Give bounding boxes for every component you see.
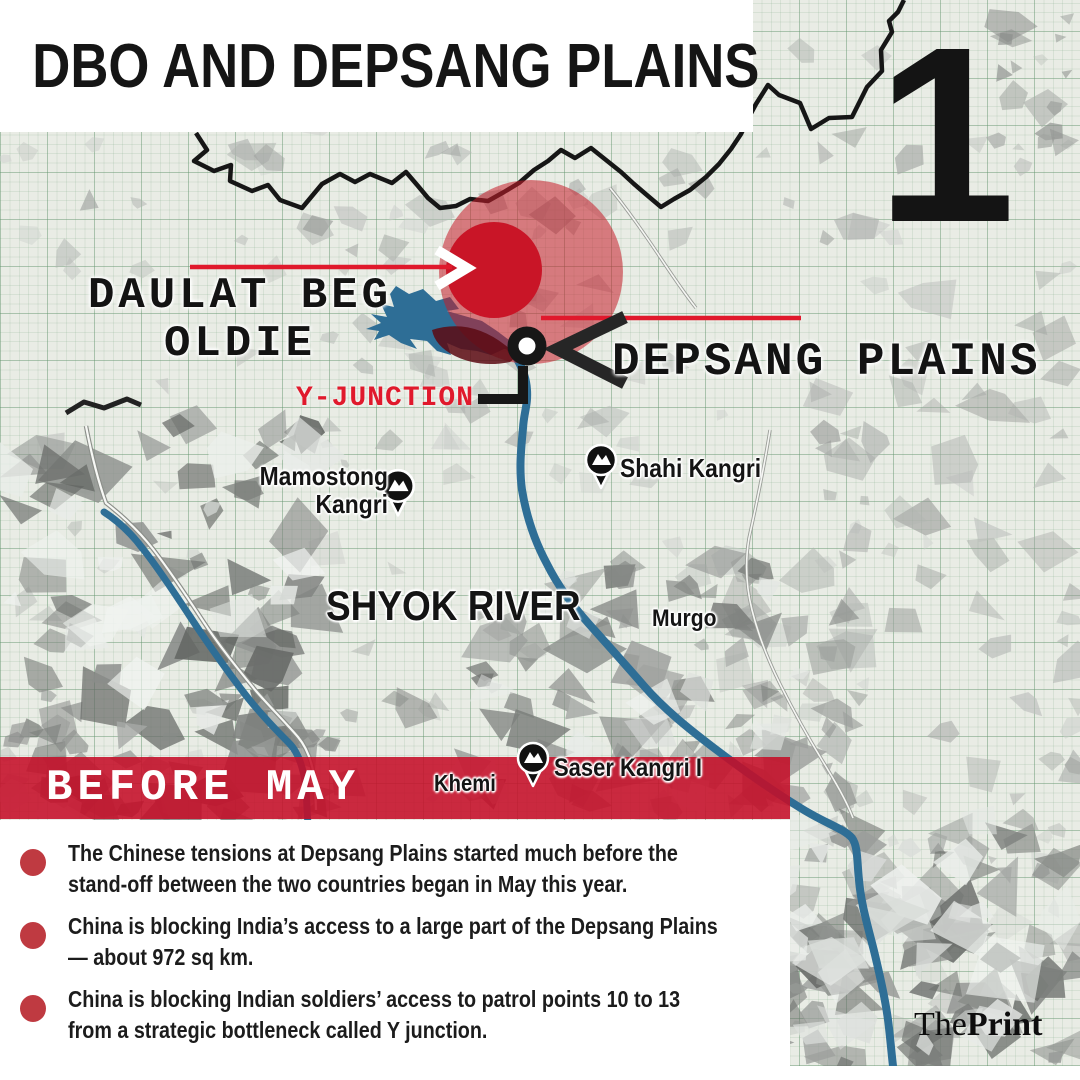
- terrain-polygon: [1060, 717, 1080, 739]
- terrain-polygon: [999, 80, 1028, 110]
- terrain-polygon: [387, 562, 406, 575]
- terrain-polygon: [787, 38, 814, 63]
- terrain-polygon: [1049, 428, 1068, 438]
- terrain-polygon: [806, 639, 856, 675]
- terrain-polygon: [840, 426, 862, 440]
- terrain-polygon: [923, 533, 933, 551]
- terrain-polygon: [694, 638, 709, 650]
- bullet-2-line1: China is blocking India’s access to a la…: [68, 911, 790, 942]
- terrain-polygon: [444, 422, 471, 449]
- terrain-polygon: [560, 303, 595, 328]
- terrain-polygon: [915, 564, 946, 589]
- terrain-polygon: [831, 127, 866, 148]
- terrain-polygon: [988, 856, 997, 864]
- terrain-polygon: [860, 277, 889, 295]
- title-box: DBO AND DEPSANG PLAINS: [0, 0, 753, 132]
- terrain-polygon: [779, 547, 834, 593]
- bullet-1-line2: stand-off between the two countries bega…: [68, 869, 790, 900]
- terrain-polygon: [627, 359, 645, 385]
- bullet-item: China is blocking Indian soldiers’ acces…: [68, 984, 790, 1046]
- terrain-polygon: [661, 352, 690, 374]
- terrain-polygon: [271, 586, 298, 605]
- terrain-polygon: [931, 435, 978, 485]
- terrain-polygon: [130, 197, 147, 209]
- terrain-polygon: [978, 635, 1011, 659]
- terrain-polygon: [820, 230, 835, 246]
- terrain-polygon: [986, 133, 1006, 149]
- terrain-polygon: [860, 496, 870, 506]
- terrain-polygon: [473, 609, 493, 621]
- terrain-polygon: [878, 230, 904, 246]
- terrain-polygon: [967, 538, 1010, 573]
- terrain-polygon: [818, 141, 834, 164]
- terrain-polygon: [1003, 809, 1039, 831]
- bullet-3-line2: from a strategic bottleneck called Y jun…: [68, 1015, 790, 1046]
- terrain-polygon: [16, 142, 38, 162]
- terrain-polygon: [375, 429, 403, 451]
- terrain-polygon: [1033, 54, 1048, 66]
- before-may-banner: BEFORE MAY: [0, 757, 790, 819]
- infographic-canvas: BEFORE MAY DAULAT BEG OLDIE DEPSANG PL: [0, 0, 1080, 1080]
- terrain-polygon: [1063, 583, 1080, 601]
- terrain-polygon: [517, 657, 538, 672]
- terrain-polygon: [80, 189, 99, 211]
- terrain-polygon: [24, 657, 63, 693]
- terrain-polygon: [905, 340, 931, 362]
- bullet-item: The Chinese tensions at Depsang Plains s…: [68, 838, 790, 900]
- terrain-polygon: [389, 205, 403, 221]
- terrain-polygon: [339, 267, 351, 276]
- terrain-polygon: [888, 834, 899, 847]
- terrain-polygon: [1057, 634, 1069, 647]
- terrain-polygon: [98, 557, 123, 571]
- terrain-polygon: [1033, 463, 1066, 489]
- terrain-polygon: [1040, 361, 1080, 387]
- terrain-polygon: [717, 410, 729, 421]
- terrain-polygon: [1014, 311, 1047, 335]
- terrain-polygon: [881, 543, 899, 558]
- bullet-2-line2: — about 972 sq km.: [68, 942, 790, 973]
- terrain-polygon: [353, 358, 374, 375]
- terrain-polygon: [1010, 793, 1026, 805]
- terrain-polygon: [847, 690, 868, 706]
- terrain-polygon: [1056, 611, 1080, 626]
- terrain-polygon: [1038, 752, 1065, 771]
- bullet-item: China is blocking India’s access to a la…: [68, 911, 790, 973]
- terrain-polygon: [903, 790, 927, 815]
- terrain-polygon: [19, 226, 42, 246]
- terrain-polygon: [334, 206, 368, 231]
- terrain-polygon: [222, 475, 263, 508]
- terrain-polygon: [341, 459, 350, 468]
- terrain-polygon: [576, 274, 614, 293]
- terrain-polygon: [843, 522, 871, 552]
- terrain-polygon: [0, 155, 12, 163]
- terrain-polygon: [207, 432, 264, 479]
- terrain-polygon: [345, 244, 359, 258]
- terrain-polygon: [340, 709, 358, 723]
- terrain-polygon: [1048, 1051, 1063, 1063]
- bullet-3-line1: China is blocking Indian soldiers’ acces…: [68, 984, 790, 1015]
- page-title: DBO AND DEPSANG PLAINS: [0, 31, 759, 102]
- terrain-polygon: [885, 608, 923, 633]
- bullet-dot: [20, 849, 46, 876]
- terrain-polygon: [1017, 531, 1078, 572]
- terrain-polygon: [928, 833, 948, 854]
- terrain-polygon: [969, 590, 1005, 620]
- terrain-polygon: [320, 331, 339, 344]
- terrain-polygon: [898, 838, 921, 858]
- terrain-polygon: [1014, 158, 1033, 177]
- terrain-polygon: [662, 536, 684, 558]
- terrain-polygon: [440, 396, 465, 413]
- terrain-polygon: [1053, 640, 1080, 683]
- terrain-polygon: [629, 466, 662, 489]
- terrain-polygon: [538, 604, 555, 624]
- bullet-dot: [20, 922, 46, 949]
- terrain-polygon: [1055, 34, 1067, 43]
- bullet-list-panel: The Chinese tensions at Depsang Plains s…: [0, 820, 790, 1080]
- banner-label: BEFORE MAY: [0, 763, 360, 813]
- terrain-polygon: [565, 697, 599, 720]
- terrain-polygon: [1050, 129, 1079, 157]
- terrain-polygon: [974, 517, 1013, 542]
- terrain-polygon: [839, 550, 856, 568]
- terrain-polygon: [783, 197, 795, 209]
- terrain-polygon: [549, 463, 572, 484]
- terrain-polygon: [234, 235, 249, 246]
- terrain-polygon: [542, 408, 559, 424]
- terrain-polygon: [398, 218, 432, 234]
- terrain-polygon: [41, 690, 57, 702]
- terrain-polygon: [616, 436, 639, 452]
- bullet-dot: [20, 995, 46, 1022]
- terrain-polygon: [153, 481, 178, 494]
- terrain-polygon: [1062, 70, 1073, 79]
- terrain-polygon: [856, 677, 869, 692]
- terrain-polygon: [843, 711, 864, 732]
- terrain-polygon: [56, 238, 82, 268]
- terrain-polygon: [1068, 698, 1080, 717]
- terrain-polygon: [1059, 261, 1077, 275]
- terrain-polygon: [895, 145, 924, 175]
- terrain-polygon: [579, 472, 611, 493]
- terrain-polygon: [916, 398, 950, 413]
- terrain-polygon: [532, 225, 547, 241]
- terrain-polygon: [810, 420, 841, 445]
- terrain-polygon: [443, 463, 476, 485]
- terrain-polygon: [382, 256, 412, 275]
- terrain-polygon: [137, 430, 171, 461]
- terrain-polygon: [262, 255, 287, 283]
- terrain-polygon: [425, 141, 450, 159]
- glacier-line: [66, 399, 141, 413]
- terrain-polygon: [823, 489, 837, 500]
- terrain-polygon: [668, 227, 693, 251]
- terrain-polygon: [662, 148, 703, 177]
- terrain-polygon: [1011, 60, 1023, 73]
- terrain-polygon: [1060, 13, 1074, 24]
- terrain-polygon: [67, 521, 82, 537]
- terrain-polygon: [460, 396, 490, 424]
- bullet-1-line1: The Chinese tensions at Depsang Plains s…: [68, 838, 790, 869]
- terrain-polygon: [129, 260, 155, 278]
- terrain-polygon: [755, 147, 771, 158]
- terrain-polygon: [396, 687, 438, 728]
- terrain-polygon: [834, 213, 879, 240]
- terrain-polygon: [962, 136, 989, 153]
- terrain-polygon: [1009, 692, 1042, 716]
- terrain-polygon: [509, 308, 527, 328]
- terrain-polygon: [236, 347, 262, 367]
- terrain-polygon: [155, 378, 169, 395]
- terrain-polygon: [157, 531, 172, 539]
- terrain-polygon: [178, 463, 216, 489]
- terrain-polygon: [351, 639, 376, 656]
- terrain-polygon: [85, 137, 105, 152]
- terrain-polygon: [1035, 271, 1061, 290]
- terrain-polygon: [725, 714, 755, 729]
- terrain-polygon: [996, 64, 1013, 82]
- terrain-polygon: [466, 379, 491, 397]
- terrain-polygon: [966, 757, 1001, 793]
- terrain-polygon: [1012, 143, 1024, 150]
- terrain-polygon: [861, 45, 892, 71]
- terrain-polygon: [898, 280, 957, 320]
- terrain-polygon: [927, 721, 960, 743]
- terrain-polygon: [793, 1021, 829, 1044]
